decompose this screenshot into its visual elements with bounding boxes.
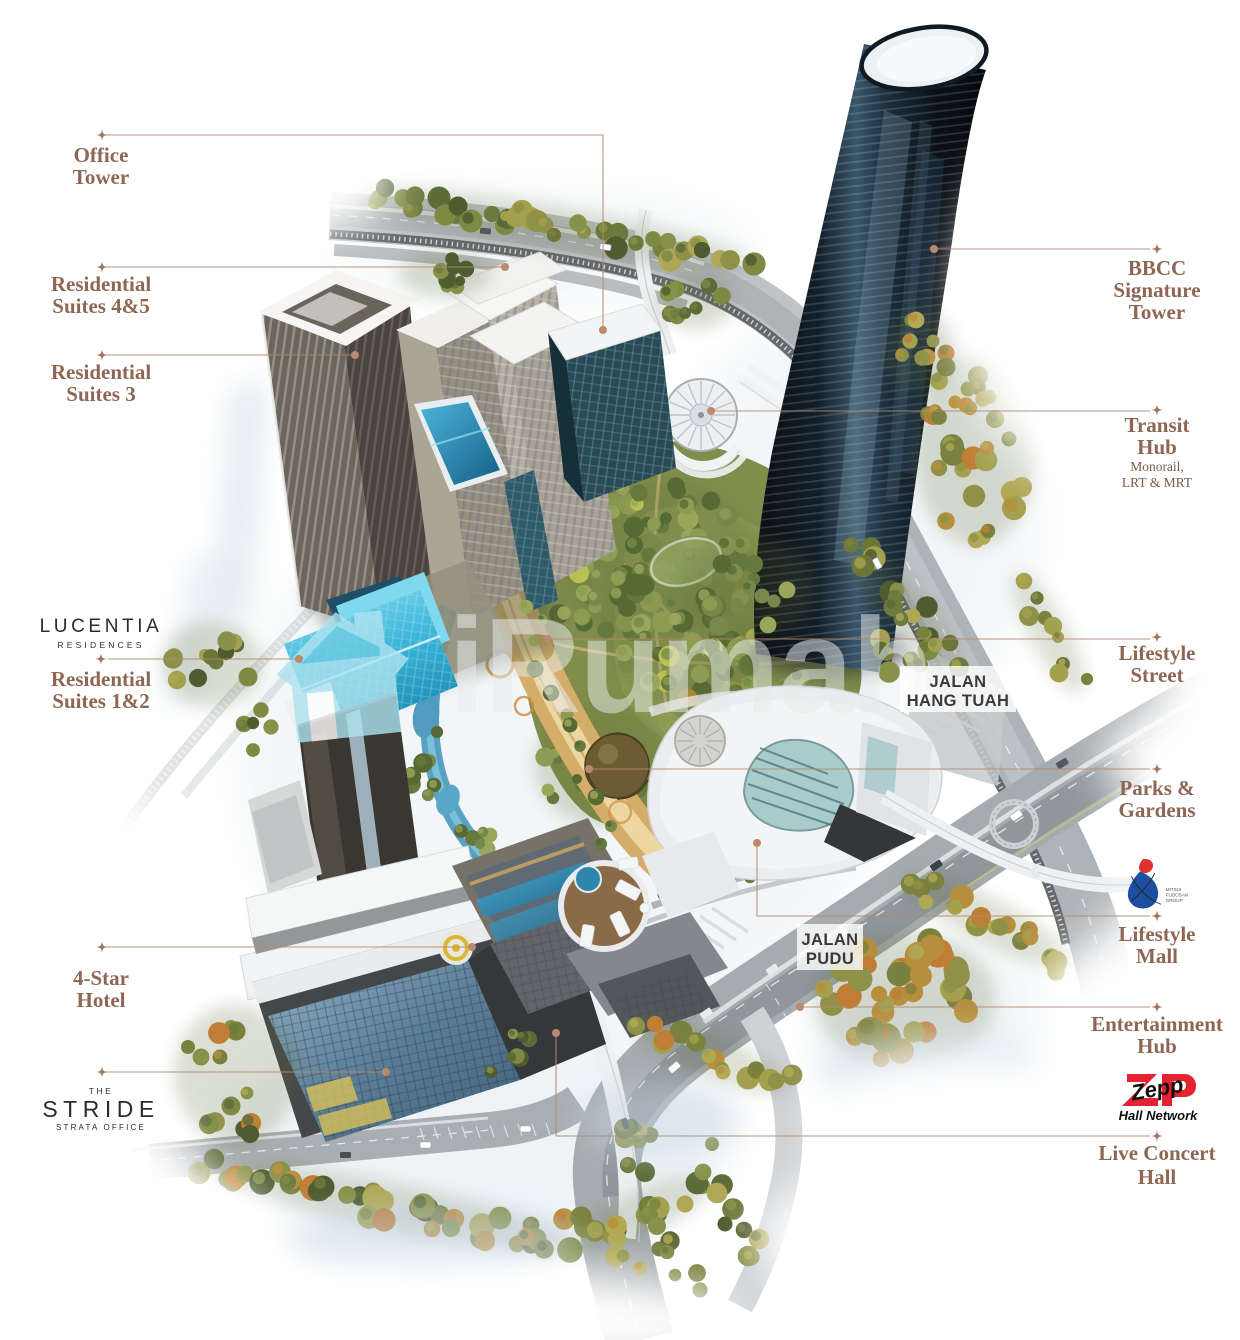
- svg-text:Suites 1&2: Suites 1&2: [52, 689, 149, 713]
- svg-text:Mall: Mall: [1136, 944, 1178, 968]
- svg-text:Transit: Transit: [1125, 413, 1190, 437]
- svg-text:iRumah: iRumah: [448, 590, 934, 741]
- svg-text:LUCENTIA: LUCENTIA: [40, 616, 163, 637]
- svg-text:4-Star: 4-Star: [73, 966, 129, 990]
- svg-text:THE: THE: [89, 1086, 114, 1096]
- svg-text:Hall: Hall: [1138, 1165, 1177, 1189]
- svg-text:Hotel: Hotel: [77, 988, 126, 1012]
- svg-text:Parks &: Parks &: [1119, 776, 1194, 800]
- svg-text:Hub: Hub: [1137, 435, 1177, 459]
- svg-text:Entertainment: Entertainment: [1091, 1012, 1223, 1036]
- svg-text:JALAN: JALAN: [801, 931, 858, 949]
- svg-text:MITSUI: MITSUI: [1166, 887, 1182, 892]
- svg-text:Residential: Residential: [51, 272, 152, 296]
- svg-text:Gardens: Gardens: [1118, 798, 1195, 822]
- svg-text:FUDOSAN: FUDOSAN: [1166, 892, 1189, 897]
- svg-text:Live Concert: Live Concert: [1098, 1141, 1215, 1165]
- svg-text:Residential: Residential: [51, 360, 152, 384]
- svg-text:Street: Street: [1130, 663, 1183, 687]
- svg-text:Hall Network: Hall Network: [1119, 1108, 1199, 1123]
- svg-text:STRATA OFFICE: STRATA OFFICE: [56, 1123, 146, 1132]
- svg-text:JALAN: JALAN: [929, 673, 986, 691]
- svg-text:BBCC: BBCC: [1128, 256, 1186, 280]
- svg-text:Tower: Tower: [1129, 300, 1185, 324]
- svg-text:PUDU: PUDU: [806, 950, 854, 968]
- svg-text:STRIDE: STRIDE: [42, 1096, 159, 1122]
- svg-text:Monorail,: Monorail,: [1130, 459, 1184, 474]
- svg-text:Suites 3: Suites 3: [66, 382, 135, 406]
- svg-text:Suites 4&5: Suites 4&5: [52, 294, 149, 318]
- svg-text:RESIDENCES: RESIDENCES: [57, 640, 144, 650]
- svg-text:Hub: Hub: [1137, 1034, 1177, 1058]
- svg-text:LRT & MRT: LRT & MRT: [1122, 475, 1193, 490]
- svg-text:GROUP: GROUP: [1166, 898, 1183, 903]
- svg-text:Tower: Tower: [73, 165, 129, 189]
- svg-text:Lifestyle: Lifestyle: [1119, 641, 1196, 665]
- svg-text:Residential: Residential: [51, 667, 152, 691]
- svg-text:Signature: Signature: [1113, 278, 1200, 302]
- svg-text:Lifestyle: Lifestyle: [1119, 922, 1196, 946]
- svg-text:HANG TUAH: HANG TUAH: [907, 692, 1010, 710]
- svg-text:Office: Office: [74, 143, 129, 167]
